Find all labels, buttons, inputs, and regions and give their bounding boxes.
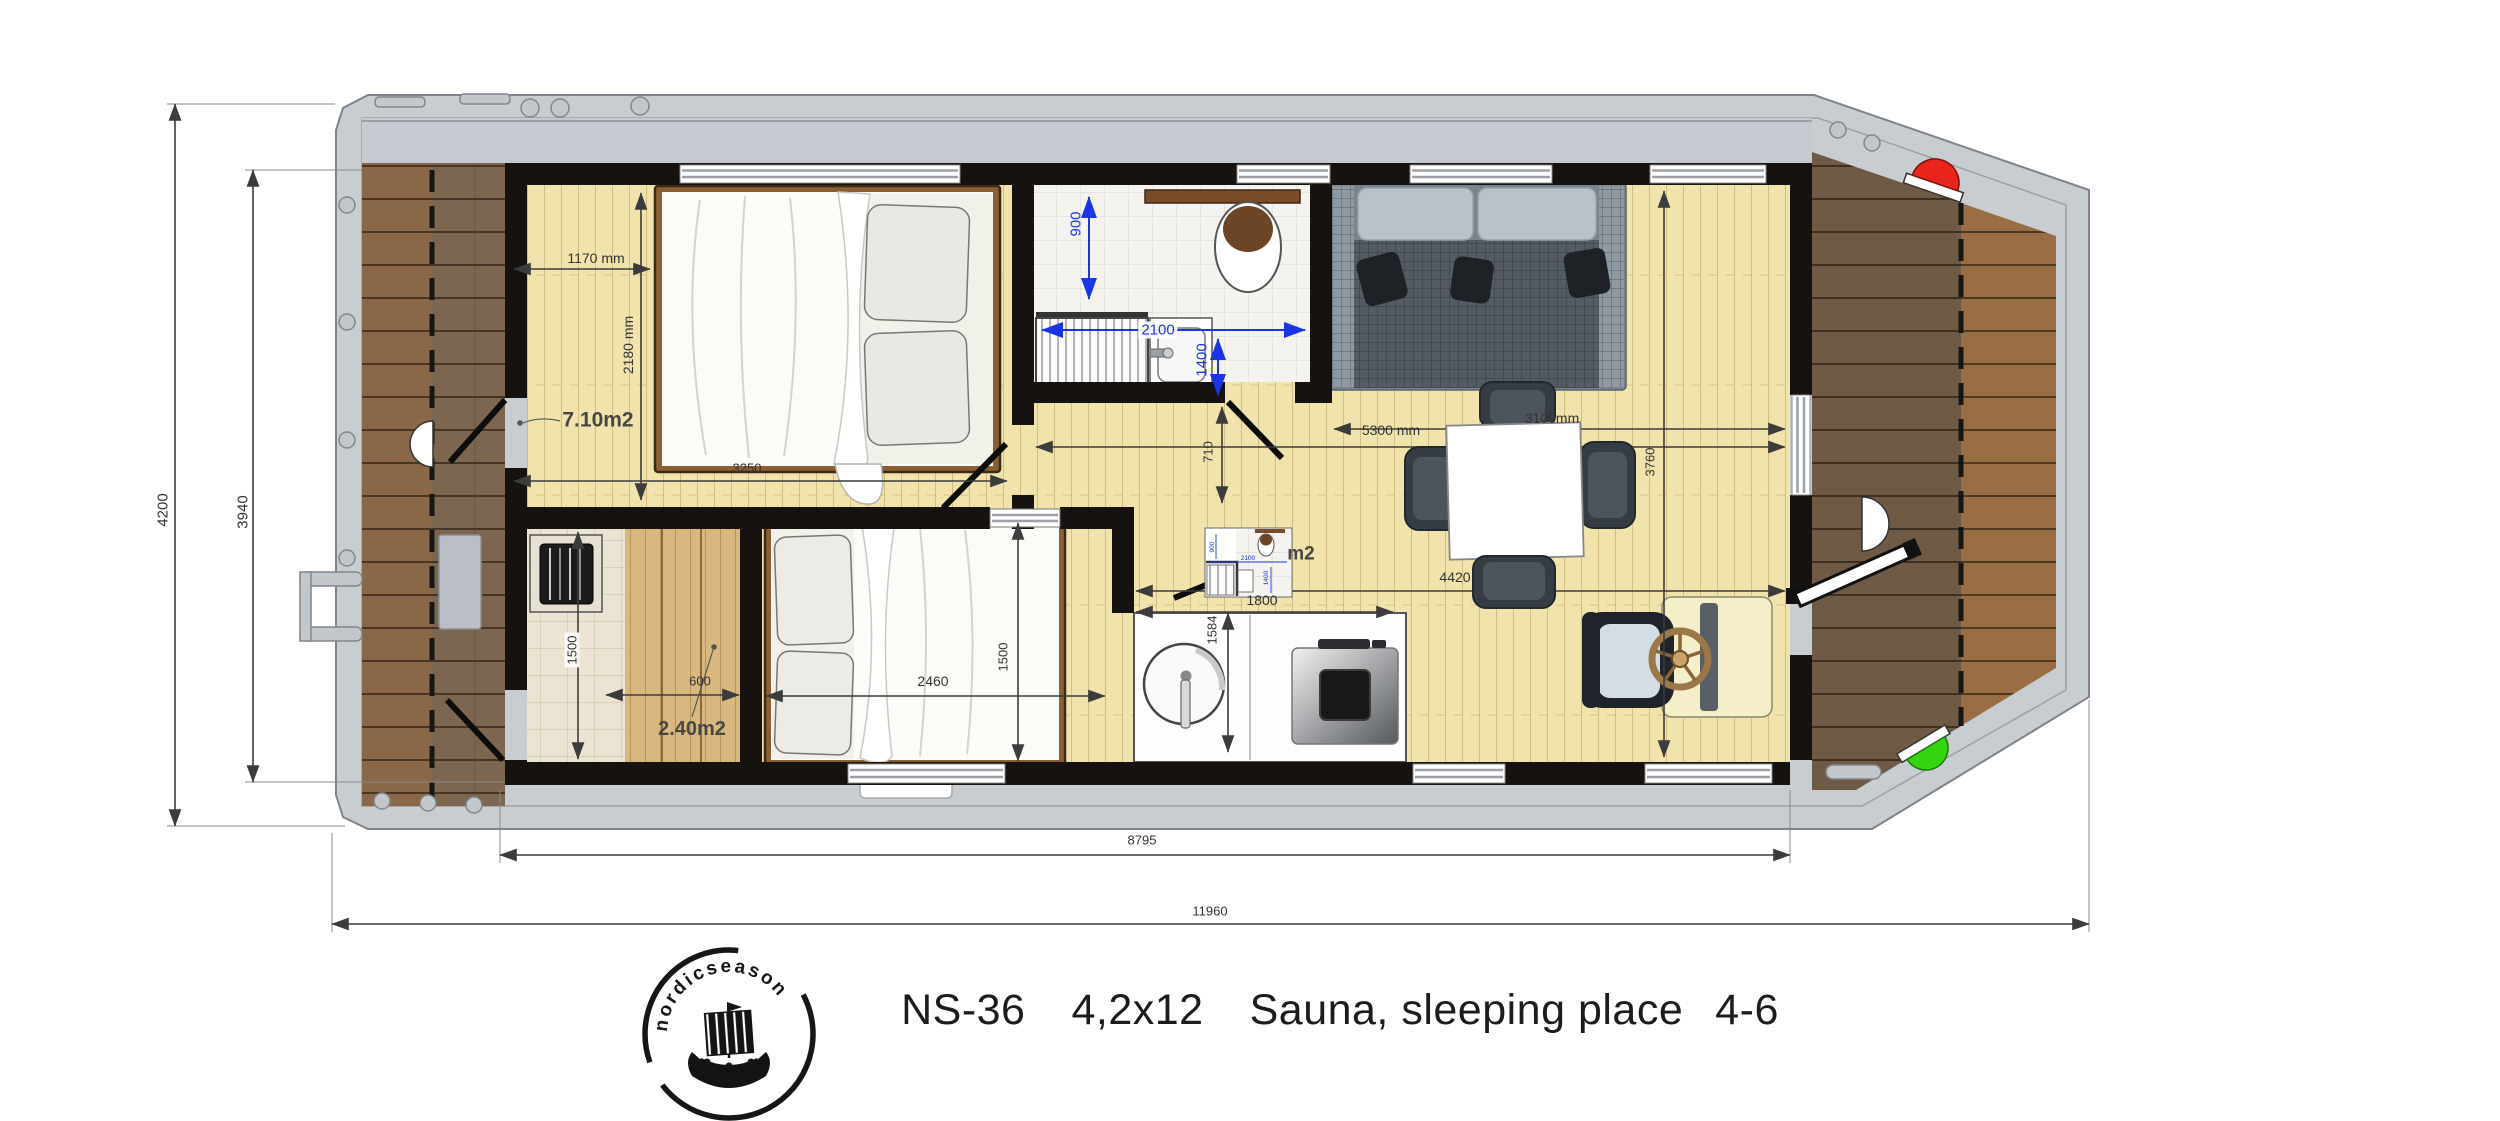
window — [1645, 764, 1772, 783]
model-description: Sauna, sleeping place — [1250, 986, 1684, 1035]
model-size: 4,2x12 — [1071, 986, 1203, 1035]
oven-handle — [1318, 639, 1370, 649]
sofa-back-cushion — [1478, 188, 1596, 240]
dim-label-sauna-depth: 1500 — [565, 633, 580, 668]
window — [1237, 165, 1330, 183]
dining-chair — [1473, 556, 1555, 608]
bed-double — [655, 186, 1000, 504]
sofa-pillow — [1449, 255, 1495, 304]
cleat — [375, 97, 425, 107]
helm-station — [1582, 597, 1772, 717]
faucet — [1163, 348, 1173, 358]
pillow — [774, 651, 854, 756]
window — [1413, 764, 1505, 783]
cleat — [460, 94, 510, 104]
sofa-pillow — [1562, 247, 1611, 300]
dining-table — [1446, 422, 1583, 559]
dim-label-cabin-length: 8795 — [1128, 834, 1157, 847]
dim-label-overall-length: 11960 — [1192, 905, 1227, 918]
captain-chair — [1582, 612, 1674, 708]
dim-label-bathroom-width: 900 — [1069, 211, 1084, 236]
sliding-door — [990, 509, 1060, 527]
plan-title: NS-36 4,2x12 Sauna, sleeping place 4-6 — [880, 986, 1800, 1035]
dim-label-counter-depth: 1584 — [1206, 616, 1219, 645]
dim-label-counter-length: 1800 — [1246, 593, 1277, 607]
dim-label-bedroom1-length: 3250 — [733, 462, 762, 475]
deck-box — [439, 535, 481, 629]
brand-logo: nordicseason — [615, 920, 842, 1121]
dim-label-sofa-wall: 3100mm — [1525, 411, 1579, 425]
dim-label-overall-beam: 4200 — [156, 493, 171, 526]
sofa-back-cushion — [1358, 188, 1473, 240]
bathroom-inset: 900 2100 1400 — [1205, 528, 1292, 597]
dim-label-hallway: 710 — [1202, 441, 1215, 463]
sink-faucet — [1181, 680, 1190, 728]
dim-label-living-length: 5300 mm — [1362, 423, 1420, 437]
dim-label-bathroom-depth: 1400 — [1195, 343, 1210, 376]
bow-roller — [1826, 765, 1881, 779]
dim-label-bedroom1-depth: 2180 mm — [621, 316, 635, 374]
dining-chair — [1580, 442, 1635, 528]
stern-deck — [362, 163, 505, 806]
viking-ship-icon — [688, 1002, 770, 1088]
sofa — [1325, 183, 1626, 390]
dim-label-bed2-length: 2460 — [917, 674, 948, 688]
floorplan-page: 900 2100 1400 nordicseason 4200 3940 117… — [0, 0, 2500, 1121]
dim-label-inner-beam: 3940 — [236, 495, 251, 528]
dim-label-living-width: 3760 — [1644, 448, 1657, 477]
window — [680, 165, 960, 183]
inset-dim-900: 900 — [1209, 541, 1216, 552]
inset-dim-1400: 1400 — [1263, 570, 1270, 585]
shower — [1036, 318, 1148, 390]
toilet-lid — [1223, 206, 1273, 252]
sauna-heater — [530, 535, 602, 612]
pillow — [864, 204, 970, 322]
window — [1792, 395, 1810, 495]
area-label-bedroom1: 7.10m2 — [562, 410, 633, 431]
dim-label-dining-width: 4420 — [1439, 570, 1470, 584]
window — [848, 764, 1005, 783]
model-capacity: 4-6 — [1715, 986, 1779, 1035]
dim-label-bedroom1-width: 1170 mm — [567, 251, 624, 265]
dim-label-sauna-bench: 600 — [689, 675, 711, 688]
pillow — [864, 330, 970, 445]
dim-label-bed2-width: 1500 — [997, 643, 1010, 672]
area-label-fragment: m2 — [1287, 545, 1314, 564]
bathroom-shelf — [1145, 190, 1300, 203]
area-label-sauna: 2.40m2 — [658, 719, 726, 739]
houseboat-floorplan: 900 2100 1400 nordicseason — [0, 0, 2500, 1121]
window — [1410, 165, 1552, 183]
dim-label-bathroom-length: 2100 — [1138, 322, 1177, 339]
bed-second — [765, 520, 1065, 798]
window — [1650, 165, 1766, 183]
model-name: NS-36 — [901, 986, 1025, 1035]
kitchen — [1134, 613, 1406, 762]
inset-dim-2100: 2100 — [1241, 555, 1256, 562]
roof-band — [362, 118, 1812, 163]
pillow — [774, 535, 854, 646]
